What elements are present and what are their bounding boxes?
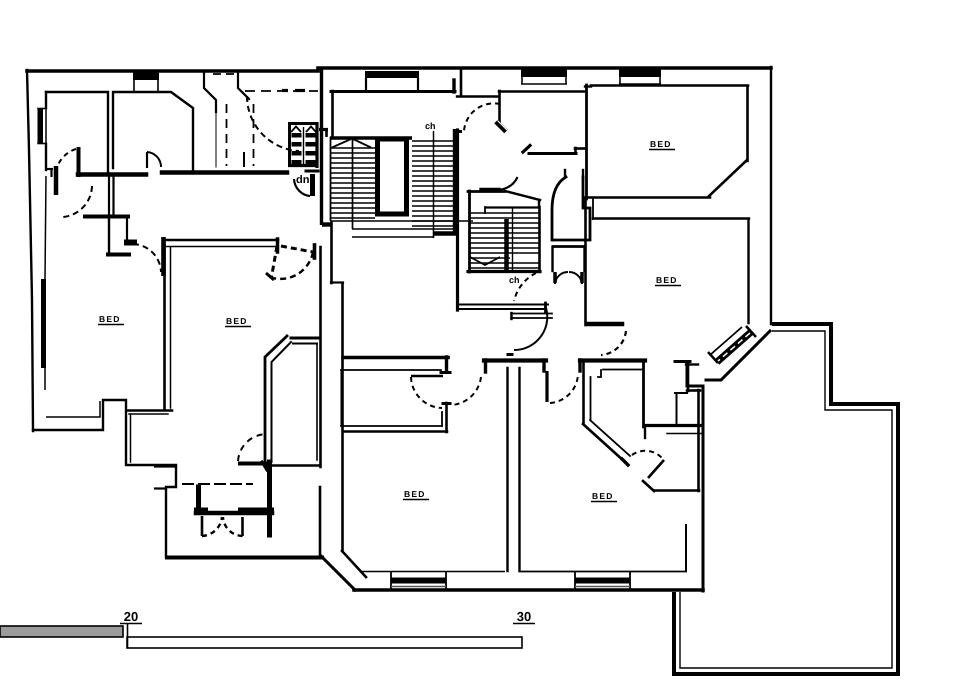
svg-text:BED: BED: [99, 314, 121, 324]
svg-text:dn: dn: [296, 174, 310, 186]
svg-text:20: 20: [124, 609, 138, 624]
svg-text:BED: BED: [656, 275, 678, 285]
svg-text:30: 30: [517, 609, 531, 624]
svg-text:ch: ch: [425, 121, 436, 131]
svg-text:BED: BED: [226, 316, 248, 326]
svg-text:BED: BED: [592, 491, 614, 501]
svg-text:ch: ch: [509, 275, 520, 285]
svg-text:BED: BED: [650, 139, 672, 149]
svg-text:BED: BED: [404, 489, 426, 499]
